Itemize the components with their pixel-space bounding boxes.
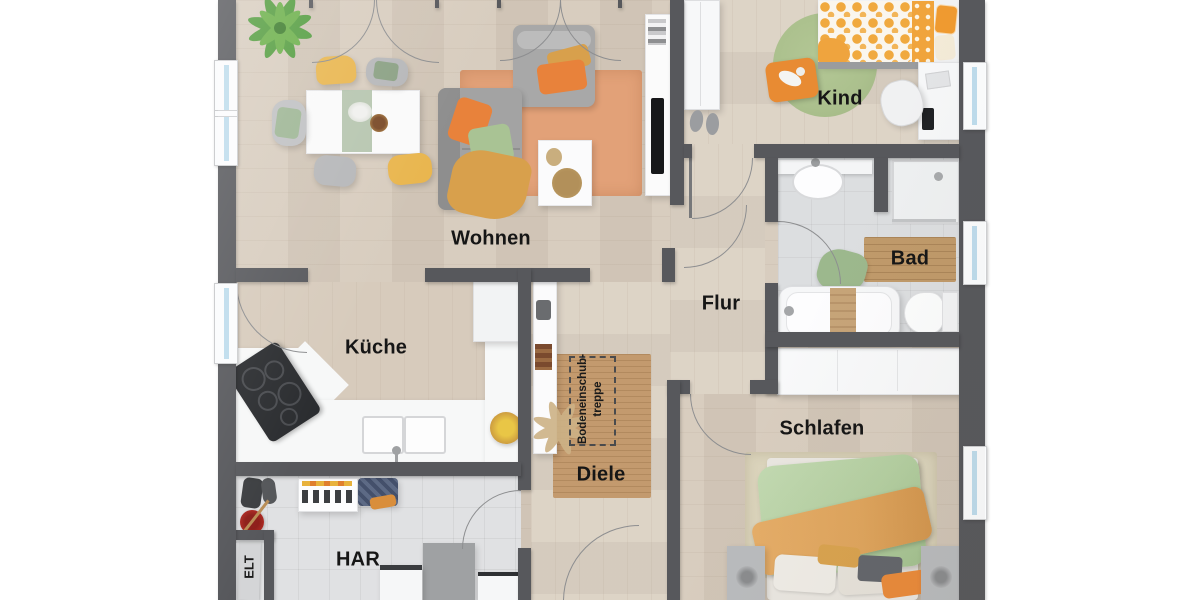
washing-machine bbox=[380, 565, 422, 600]
attic-hatch-label-line1: Bodeneinschub- bbox=[576, 347, 591, 451]
kids-bed-orange-section bbox=[912, 1, 934, 64]
attic-hatch-label: Bodeneinschub- treppe bbox=[576, 347, 606, 451]
room-label-kind: Kind bbox=[817, 88, 862, 111]
wall-flur-bad-upper bbox=[765, 158, 778, 222]
kids-pillow-1 bbox=[934, 4, 959, 35]
window-glass bbox=[972, 67, 977, 125]
room-label-flur: Flur bbox=[702, 293, 741, 316]
kids-desk-monitor bbox=[922, 108, 934, 130]
room-label-schlafen: Schlafen bbox=[780, 418, 865, 441]
bedroom-closet-divider-2 bbox=[897, 350, 898, 391]
window-glass bbox=[972, 451, 977, 515]
room-label-wohnen: Wohnen bbox=[451, 228, 531, 251]
floor-plan: Wohnen Küche Flur Kind Bad Schlafen Diel… bbox=[218, 0, 985, 600]
tv-screen bbox=[651, 98, 664, 174]
wall-kind-flur-stub bbox=[684, 144, 692, 158]
kids-pillow-2 bbox=[934, 34, 956, 61]
wall-flur-schlafen-b bbox=[750, 380, 778, 394]
palm-plant bbox=[244, 0, 316, 64]
wall-bad-shower-stub bbox=[874, 158, 888, 212]
wall-kind-bad bbox=[754, 144, 959, 158]
hall-wardrobe bbox=[684, 0, 720, 110]
window-wohnen-left bbox=[214, 60, 238, 166]
wall-kueche-diele bbox=[518, 268, 531, 490]
window-mullion bbox=[215, 110, 237, 117]
table-centerpiece-flowers bbox=[348, 102, 372, 122]
bath-sink-faucet bbox=[811, 158, 820, 167]
bathtub-faucet bbox=[784, 306, 794, 316]
bedroom-closet bbox=[777, 348, 961, 395]
bathtub-caddy bbox=[830, 288, 856, 338]
wall-diele-schlafen bbox=[667, 380, 680, 600]
room-label-diele: Diele bbox=[577, 464, 626, 487]
window-kind-right bbox=[963, 62, 987, 130]
napkin-green bbox=[373, 60, 399, 81]
kitchen-sink-basin-right bbox=[404, 416, 446, 454]
burner-5 bbox=[277, 404, 302, 429]
wall-bad-schlafen bbox=[765, 332, 959, 347]
dining-chair-gray-bottom bbox=[313, 154, 357, 188]
cat-head bbox=[796, 67, 805, 76]
terrace-door1-jamb-right bbox=[435, 0, 439, 8]
pegboard-tools bbox=[302, 490, 352, 503]
floorplan-canvas: Wohnen Küche Flur Kind Bad Schlafen Diel… bbox=[0, 0, 1200, 600]
toilet-tank bbox=[942, 292, 958, 332]
room-label-kueche: Küche bbox=[345, 337, 407, 360]
bedroom-closet-divider-1 bbox=[837, 350, 838, 391]
wall-wohnen-kueche-a bbox=[236, 268, 308, 282]
window-glass bbox=[972, 226, 977, 280]
shower-drain bbox=[934, 172, 943, 181]
kids-desk-laptop bbox=[925, 70, 951, 89]
wall-wohnen-kueche-b bbox=[425, 268, 590, 282]
sideboard-books bbox=[648, 19, 666, 45]
bath-sink-basin bbox=[792, 164, 844, 200]
elt-wall-right bbox=[264, 530, 274, 600]
wall-kueche-har bbox=[236, 462, 521, 476]
room-label-har: HAR bbox=[336, 549, 380, 572]
burner-4 bbox=[273, 377, 306, 410]
wall-wohnen-stub bbox=[662, 248, 675, 282]
window-kueche-left bbox=[214, 283, 238, 364]
attic-hatch-label-line2: treppe bbox=[591, 347, 606, 451]
terrace-door1-jamb-left bbox=[309, 0, 313, 8]
table-serving-bowl bbox=[370, 114, 388, 132]
boiler-appliance bbox=[478, 572, 522, 600]
utility-cabinet-gray bbox=[423, 543, 475, 600]
nightstand-left-lamp bbox=[736, 566, 758, 588]
palm-plant-svg bbox=[244, 0, 316, 64]
wall-har-diele-lower bbox=[518, 548, 531, 600]
shower-glass-edge bbox=[892, 219, 956, 222]
shower-tray bbox=[892, 160, 960, 224]
kitchen-faucet-stem bbox=[395, 452, 398, 462]
dining-chair-yellow-bottom bbox=[387, 152, 434, 186]
terrace-door2-jamb-right bbox=[618, 0, 622, 8]
side-chair-throw bbox=[274, 106, 302, 139]
console-books-brown bbox=[535, 344, 552, 370]
pegboard-label-strip bbox=[302, 481, 352, 486]
vacuum-cleaner bbox=[240, 477, 264, 509]
room-label-bad: Bad bbox=[891, 248, 929, 271]
window-schlafen-right bbox=[963, 446, 987, 520]
window-bad-right bbox=[963, 221, 987, 285]
kids-room-door-leaf bbox=[689, 158, 692, 218]
bed-pillow-mustard bbox=[817, 544, 861, 568]
terrace-door2-jamb-left bbox=[497, 0, 501, 8]
console-decor-dark bbox=[536, 300, 551, 320]
coffee-table-tray bbox=[552, 168, 582, 198]
room-label-elt: ELT bbox=[242, 537, 257, 597]
hall-wardrobe-divider bbox=[700, 2, 701, 106]
toilet-bowl bbox=[904, 292, 944, 334]
nightstand-right-lamp bbox=[930, 566, 952, 588]
window-glass bbox=[224, 288, 229, 359]
coffee-table-vase-plant bbox=[546, 148, 562, 166]
wall-wohnen-flur bbox=[670, 0, 684, 205]
